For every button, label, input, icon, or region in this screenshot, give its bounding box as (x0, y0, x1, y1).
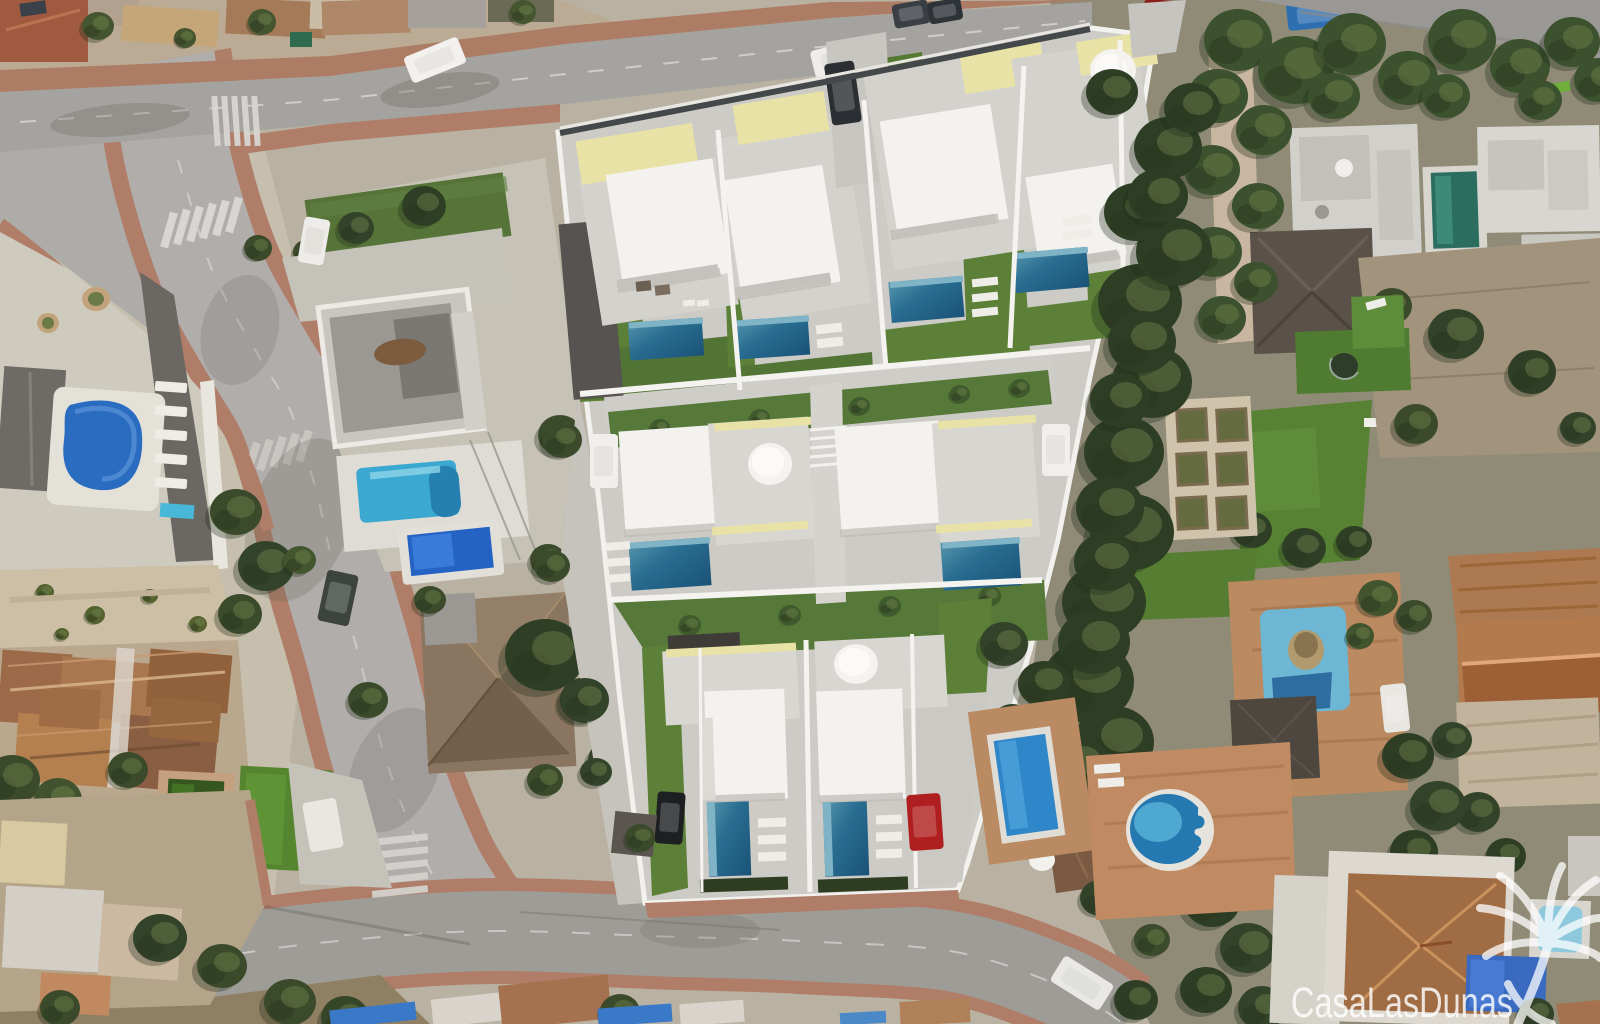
svg-text:CasaLasDunas: CasaLasDunas (1291, 979, 1513, 1024)
